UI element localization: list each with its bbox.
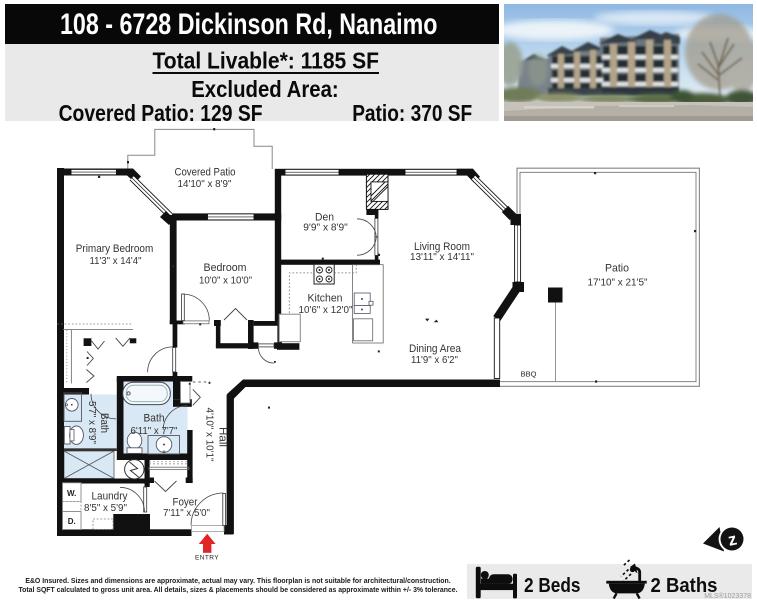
svg-text:Laundry: Laundry — [92, 491, 128, 503]
svg-text:6'11" x 7'7": 6'11" x 7'7" — [131, 426, 178, 437]
svg-text:Excluded Area:: Excluded Area: — [191, 76, 339, 102]
svg-text:5'7" x 8'9": 5'7" x 8'9" — [86, 401, 97, 444]
svg-text:Patio: Patio — [605, 263, 629, 275]
svg-text:Bath: Bath — [98, 413, 110, 433]
svg-text:BBQ: BBQ — [521, 370, 537, 379]
svg-text:11'3" x 14'4": 11'3" x 14'4" — [90, 256, 142, 267]
svg-text:7'11" x 5'0": 7'11" x 5'0" — [163, 508, 210, 519]
svg-text:Covered Patio: Covered Patio — [175, 167, 236, 179]
svg-text:8'5" x 5'9": 8'5" x 5'9" — [84, 503, 127, 514]
svg-text:Bedroom: Bedroom — [204, 262, 247, 274]
svg-text:Hall: Hall — [216, 427, 228, 447]
svg-text:108 - 6728 Dickinson Rd, Nanai: 108 - 6728 Dickinson Rd, Nanaimo — [60, 8, 438, 41]
svg-text:9'9" x 8'9": 9'9" x 8'9" — [303, 223, 348, 234]
svg-text:13'11" x 14'11": 13'11" x 14'11" — [410, 252, 474, 263]
svg-text:MLS®1023378: MLS®1023378 — [704, 592, 751, 600]
svg-text:14'10" x 8'9": 14'10" x 8'9" — [178, 179, 232, 190]
svg-text:11'9" x 6'2": 11'9" x 6'2" — [411, 355, 458, 366]
svg-text:Kitchen: Kitchen — [308, 293, 343, 305]
svg-text:10'0" x 10'0": 10'0" x 10'0" — [199, 276, 252, 287]
svg-text:2 Beds: 2 Beds — [524, 575, 581, 597]
svg-text:Total Livable*: 1185 SF: Total Livable*: 1185 SF — [153, 48, 380, 74]
svg-text:4'10" x 10'1": 4'10" x 10'1" — [203, 408, 214, 462]
svg-text:Primary Bedroom: Primary Bedroom — [76, 243, 154, 255]
svg-text:Bath: Bath — [144, 413, 165, 425]
svg-text:D.: D. — [68, 517, 76, 526]
svg-text:17'10" x 21'5": 17'10" x 21'5" — [588, 278, 648, 289]
svg-text:10'6" x 12'0": 10'6" x 12'0" — [299, 305, 353, 316]
svg-text:W.: W. — [67, 489, 76, 498]
svg-text:Dining Area: Dining Area — [409, 343, 462, 355]
svg-text:Foyer: Foyer — [173, 497, 198, 509]
svg-text:ENTRY: ENTRY — [195, 555, 219, 562]
